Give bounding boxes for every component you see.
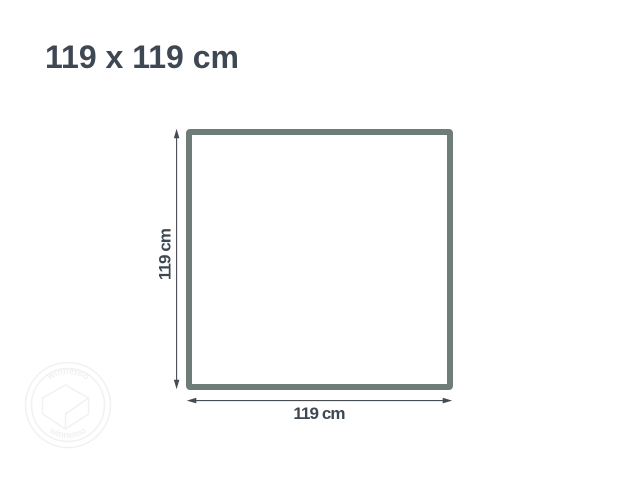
svg-text:winnetoo: winnetoo <box>45 366 92 382</box>
